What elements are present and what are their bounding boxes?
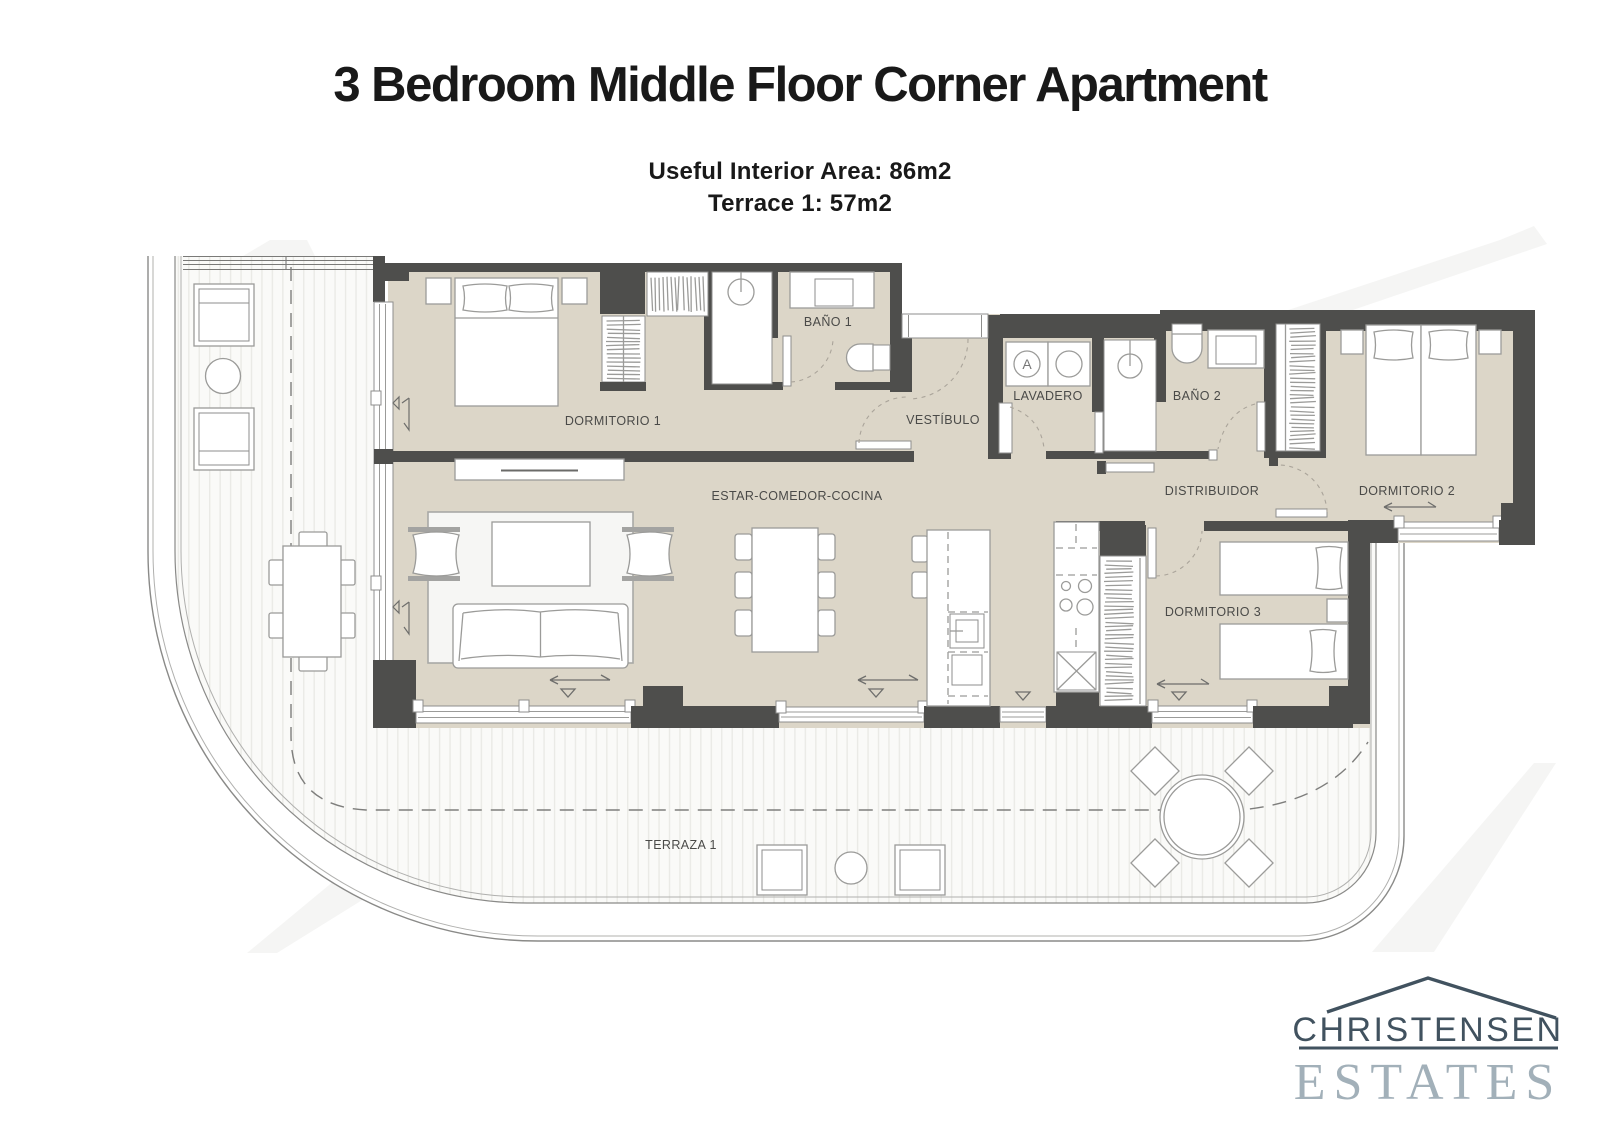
svg-text:VESTÍBULO: VESTÍBULO bbox=[906, 412, 980, 427]
svg-text:BAÑO 2: BAÑO 2 bbox=[1173, 389, 1221, 403]
svg-text:A: A bbox=[1022, 356, 1032, 372]
svg-text:ESTAR-COMEDOR-COCINA: ESTAR-COMEDOR-COCINA bbox=[712, 489, 883, 503]
svg-text:DISTRIBUIDOR: DISTRIBUIDOR bbox=[1165, 484, 1259, 498]
svg-text:DORMITORIO 3: DORMITORIO 3 bbox=[1165, 605, 1261, 619]
svg-text:BAÑO 1: BAÑO 1 bbox=[804, 315, 852, 329]
svg-text:TERRAZA 1: TERRAZA 1 bbox=[645, 838, 717, 852]
svg-text:CHRISTENSEN: CHRISTENSEN bbox=[1292, 1011, 1563, 1049]
svg-text:DORMITORIO 2: DORMITORIO 2 bbox=[1359, 484, 1455, 498]
svg-text:DORMITORIO 1: DORMITORIO 1 bbox=[565, 414, 661, 428]
svg-text:LAVADERO: LAVADERO bbox=[1013, 389, 1082, 403]
svg-text:ESTATES: ESTATES bbox=[1294, 1054, 1563, 1111]
